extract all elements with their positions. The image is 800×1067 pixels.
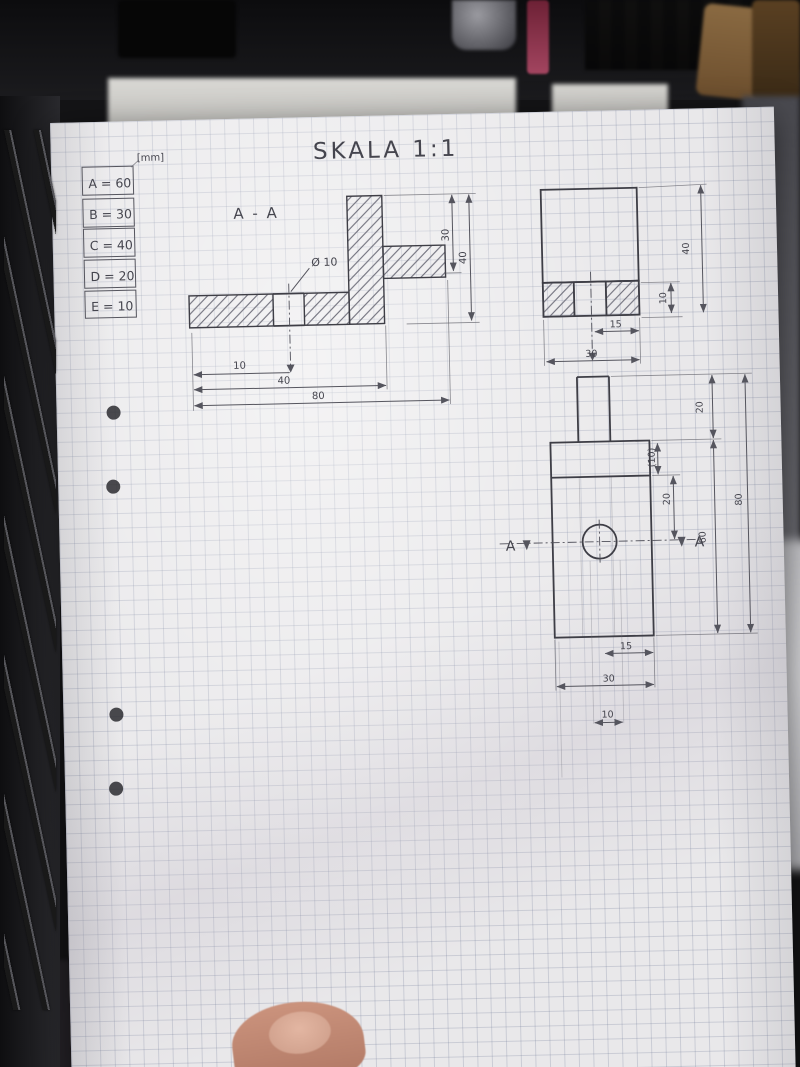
thumb-nail	[267, 1008, 334, 1057]
legend-row-b: B = 30	[89, 206, 132, 222]
section-bar-left	[189, 294, 274, 328]
side-centerline	[591, 272, 593, 357]
dim-bottom-inner: 10	[233, 361, 246, 372]
legend-row-e: E = 10	[91, 298, 134, 314]
dim-hole-width: 10	[601, 709, 613, 720]
steel-pot	[452, 0, 516, 50]
side-body	[541, 188, 639, 283]
technical-drawing: SKALA 1:1 A = 60 B = 30 C = 40 D = 20 E …	[50, 107, 796, 1067]
dark-appliance	[118, 0, 236, 58]
legend-table: A = 60 B = 30 C = 40 D = 20 E = 10 [mm]	[82, 152, 168, 318]
cut-letter-left: A	[506, 539, 516, 555]
dim-hole-to-edge-side: 15	[610, 319, 622, 330]
hole-diameter-label: Ø 10	[311, 256, 337, 270]
graph-paper-page: SKALA 1:1 A = 60 B = 30 C = 40 D = 20 E …	[50, 107, 796, 1067]
dim-thickness: 10	[658, 292, 669, 304]
photo-of-notebook-scene: SKALA 1:1 A = 60 B = 30 C = 40 D = 20 E …	[0, 0, 800, 1067]
side-base-left	[543, 282, 575, 317]
dim-width-front: 30	[603, 673, 615, 684]
front-view: A A 15 30 10 (1	[496, 373, 761, 779]
punched-holes	[100, 405, 129, 795]
side-view: 10 40 15 30	[541, 184, 711, 366]
dim-width-side: 30	[585, 349, 597, 360]
front-body	[550, 440, 653, 637]
section-arm	[383, 245, 446, 278]
dim-height: 40	[681, 242, 692, 254]
legend-row-d: D = 20	[90, 268, 134, 284]
dim-collar-ref: (10)	[647, 448, 658, 468]
dim-stem: 20	[694, 401, 705, 413]
dim-bottom-outer: 80	[312, 391, 325, 402]
section-column	[347, 195, 385, 324]
legend-row-c: C = 40	[90, 237, 133, 253]
spiral-binding	[4, 130, 56, 1010]
dim-total-height: 80	[734, 493, 745, 505]
dim-body-height: 60	[697, 531, 708, 543]
pink-bottle	[527, 0, 549, 74]
page-title: SKALA 1:1	[313, 136, 459, 165]
knife-block	[752, 0, 800, 100]
dim-right-inner: 30	[441, 229, 452, 242]
dim-bottom-mid: 40	[277, 376, 290, 387]
dim-hole-to-edge-front: 15	[620, 641, 632, 652]
section-bar-right	[304, 292, 350, 325]
legend-row-a: A = 60	[88, 175, 131, 191]
side-base-right	[606, 281, 640, 316]
section-view: A - A Ø 10	[187, 193, 482, 411]
dim-hole-center: 20	[662, 493, 673, 505]
unit-note: [mm]	[137, 152, 165, 164]
dim-right-outer: 40	[458, 251, 469, 264]
section-view-label: A - A	[233, 204, 279, 223]
hole-centerline	[289, 284, 291, 366]
